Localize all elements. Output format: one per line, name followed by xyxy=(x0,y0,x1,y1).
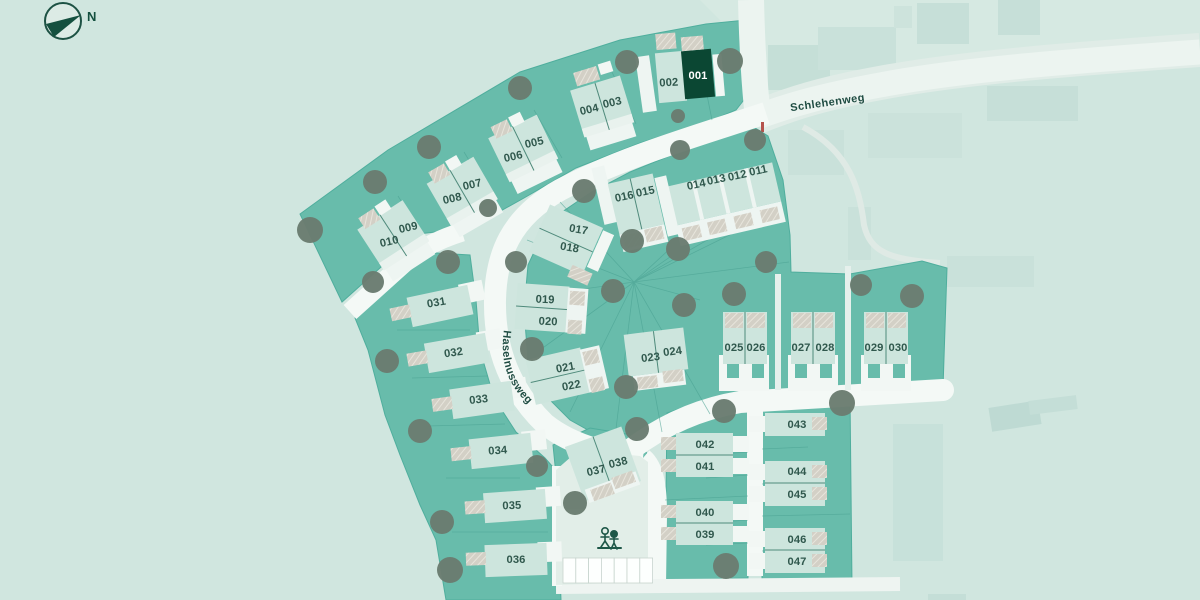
svg-text:N: N xyxy=(87,9,96,24)
svg-text:044: 044 xyxy=(788,466,808,478)
svg-text:025: 025 xyxy=(725,342,744,354)
svg-text:033: 033 xyxy=(469,393,489,407)
svg-text:040: 040 xyxy=(696,507,715,519)
svg-text:041: 041 xyxy=(696,461,715,473)
svg-text:036: 036 xyxy=(507,554,526,566)
svg-text:042: 042 xyxy=(696,439,715,451)
svg-text:030: 030 xyxy=(889,342,908,354)
svg-text:027: 027 xyxy=(792,342,811,354)
svg-text:046: 046 xyxy=(788,534,807,546)
svg-text:047: 047 xyxy=(788,556,807,568)
svg-text:029: 029 xyxy=(865,342,884,354)
svg-text:034: 034 xyxy=(488,444,508,457)
svg-text:019: 019 xyxy=(535,294,554,307)
svg-text:043: 043 xyxy=(788,419,807,431)
svg-text:001: 001 xyxy=(689,70,708,82)
svg-text:020: 020 xyxy=(538,316,557,329)
svg-text:026: 026 xyxy=(747,342,766,354)
svg-text:023: 023 xyxy=(640,351,660,365)
svg-text:045: 045 xyxy=(788,489,807,501)
svg-text:024: 024 xyxy=(662,345,683,359)
svg-text:028: 028 xyxy=(816,342,835,354)
svg-text:039: 039 xyxy=(696,529,715,541)
svg-text:035: 035 xyxy=(502,500,521,513)
svg-text:002: 002 xyxy=(659,77,679,90)
